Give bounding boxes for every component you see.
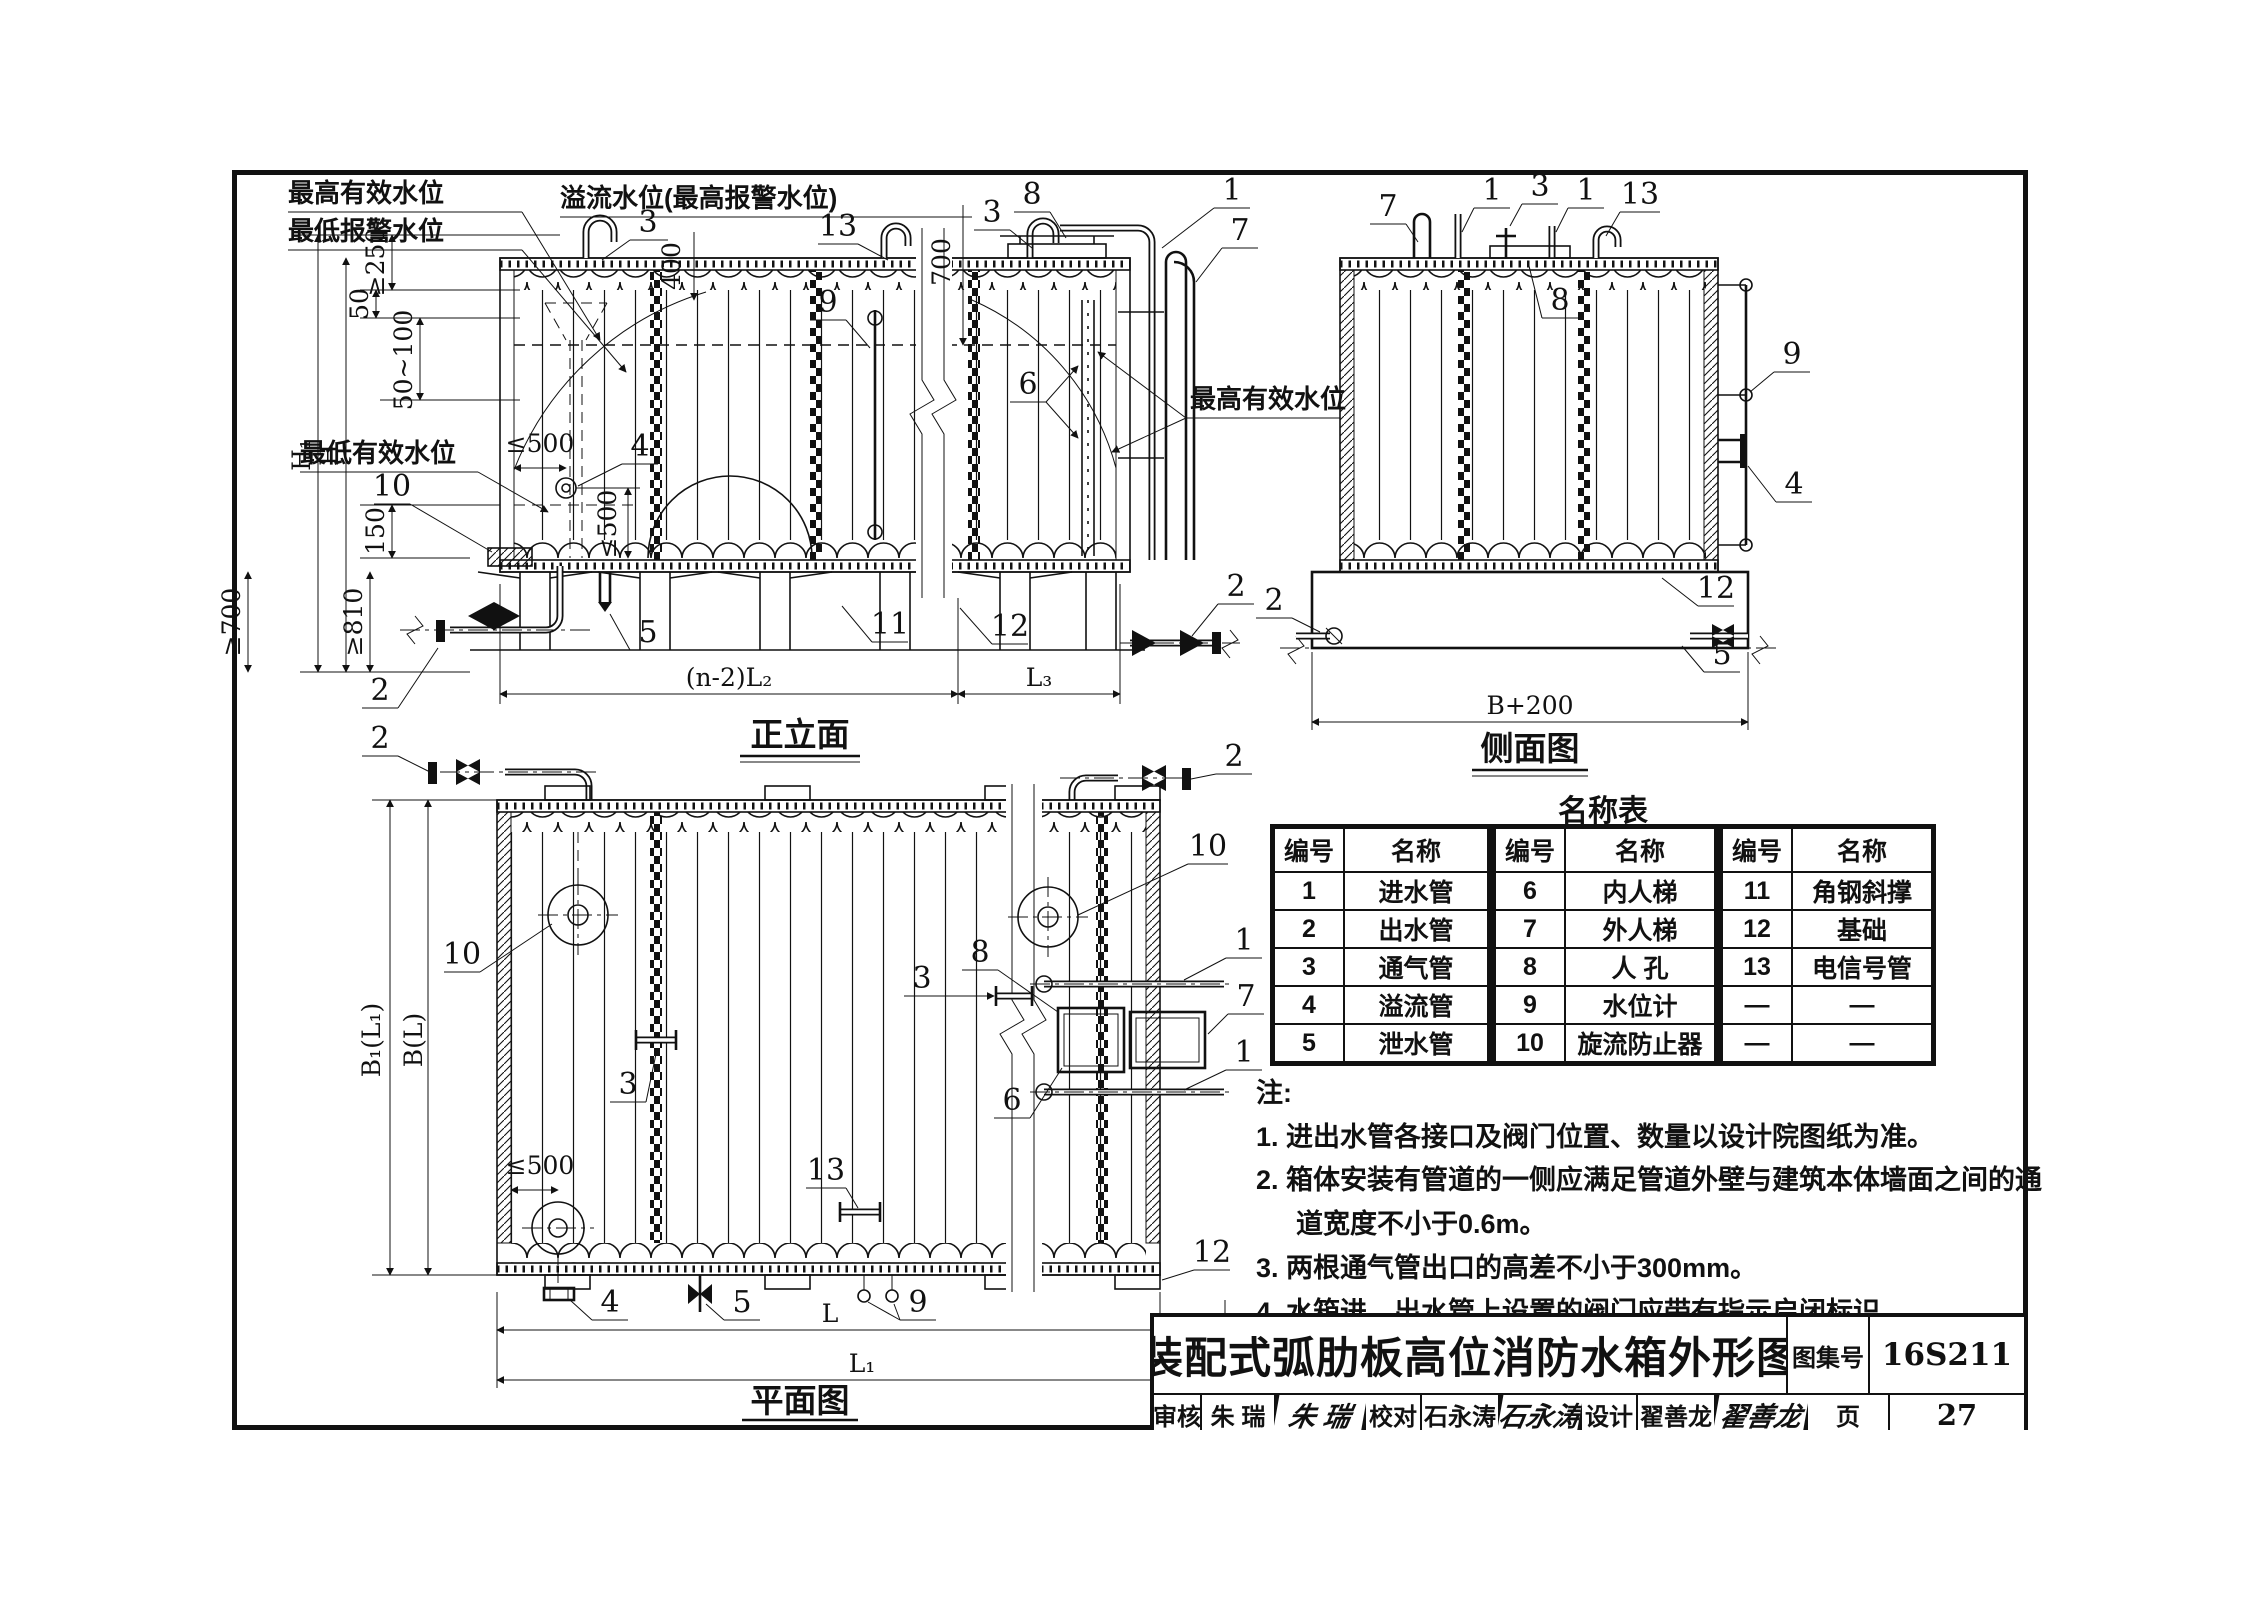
design-label: 设计 xyxy=(1582,1395,1636,1434)
col-header-id: 编号 xyxy=(1722,828,1792,872)
cell: 电信号管 xyxy=(1792,948,1932,986)
plan-callout-3L: 3 xyxy=(618,1067,637,1102)
callout-feed-right: 2 xyxy=(1224,739,1243,774)
plan-callout-10L: 10 xyxy=(443,937,481,972)
cell: 基础 xyxy=(1792,910,1932,948)
plan-callout-5: 5 xyxy=(732,1285,751,1320)
callout-ladder-int: 6 xyxy=(1018,367,1037,402)
designer-name: 翟善龙 xyxy=(1638,1395,1714,1434)
vent-gooseneck-left xyxy=(586,218,614,258)
cell: 8 xyxy=(1495,948,1565,986)
plan-feed-left: 2 xyxy=(362,721,600,800)
callout-brace: 11 xyxy=(871,607,909,642)
notes-section: 注: 1. 进出水管各接口及阀门位置、数量以设计院图纸为准。 2. 箱体安装有管… xyxy=(1256,1072,2046,1334)
side-callout-9: 9 xyxy=(1782,337,1801,372)
reviewer-signature: 朱 瑞 xyxy=(1273,1395,1368,1434)
vent-gooseneck-right xyxy=(1030,221,1056,258)
outlet-piping-right xyxy=(1120,630,1240,658)
side-callout-2: 2 xyxy=(1264,583,1283,618)
note-item-2: 2. 箱体安装有管道的一侧应满足管道外壁与建筑本体墙面之间的通道宽度不小于0.6… xyxy=(1256,1159,2046,1246)
callout-outlet-left: 2 xyxy=(370,673,389,708)
dim-400: 400 xyxy=(657,242,686,290)
review-label: 审核 xyxy=(1154,1395,1200,1434)
side-callout-1a: 1 xyxy=(1482,173,1501,208)
name-table-group-1: 编号 名称 1进水管 2出水管 3通气管 4溢流管 5泄水管 xyxy=(1273,827,1489,1063)
outlet-piping-left xyxy=(400,548,590,644)
name-table: 编号 名称 1进水管 2出水管 3通气管 4溢流管 5泄水管 编号 名称 6内人… xyxy=(1270,824,1936,1066)
drawing-sheet: H₁ H ≥250 50 50~100 150 ≥700 ≥810 400 70… xyxy=(0,0,2263,1600)
plan-callout-13: 13 xyxy=(807,1153,845,1188)
dim-le500-h: ≤500 xyxy=(506,429,575,458)
name-table-group-2: 编号 名称 6内人梯 7外人梯 8人 孔 9水位计 10旋流防止器 xyxy=(1494,827,1716,1063)
side-view: 7 1 3 1 13 8 9 4 12 5 2 xyxy=(1256,169,1812,776)
plan-feed-right: 2 xyxy=(1060,739,1252,800)
side-gauge xyxy=(1718,279,1752,551)
dim-plan-le500: ≤500 xyxy=(506,1151,575,1180)
dim-50: 50 xyxy=(345,288,374,320)
callout-drain: 5 xyxy=(638,615,657,650)
col-header-name: 名称 xyxy=(1792,828,1932,872)
label-max-effective-level: 最高有效水位 xyxy=(288,178,444,208)
dim-l1: L₁ xyxy=(849,1349,876,1378)
plan-callout-8: 8 xyxy=(970,935,989,970)
cell: 人 孔 xyxy=(1565,948,1715,986)
cell: — xyxy=(1722,1024,1792,1062)
dim-50-100: 50~100 xyxy=(389,310,418,410)
cell: 9 xyxy=(1495,986,1565,1024)
plan-callout-3M: 3 xyxy=(912,961,931,996)
side-outlet xyxy=(1296,628,1342,644)
plan-overflow-flange xyxy=(544,1288,574,1300)
dim-le500-v: ≤500 xyxy=(593,490,622,559)
cell: 通气管 xyxy=(1344,948,1488,986)
cell: — xyxy=(1792,986,1932,1024)
callout-outlet-right: 2 xyxy=(1226,569,1245,604)
cell: 7 xyxy=(1495,910,1565,948)
dim-700: 700 xyxy=(927,238,956,286)
callout-feed-left: 2 xyxy=(370,721,389,756)
page-number: 27 xyxy=(1890,1395,2024,1434)
plan-callout-1B: 1 xyxy=(1234,1035,1253,1070)
dim-150: 150 xyxy=(361,507,390,555)
cell: 出水管 xyxy=(1344,910,1488,948)
dim-span-right: L₃ xyxy=(1026,663,1053,692)
col-header-id: 编号 xyxy=(1495,828,1565,872)
callout-overflow-nozzle: 4 xyxy=(630,429,649,464)
cell: 10 xyxy=(1495,1024,1565,1062)
drain-stub xyxy=(598,572,612,612)
side-callout-5: 5 xyxy=(1712,637,1731,672)
plan-callout-1T: 1 xyxy=(1234,923,1253,958)
label-min-effective-level: 最低有效水位 xyxy=(300,438,456,468)
side-callout-4: 4 xyxy=(1784,467,1803,502)
foundation-base xyxy=(1312,572,1748,648)
cell: 11 xyxy=(1722,872,1792,910)
front-view-caption: 正立面 xyxy=(751,716,850,753)
reviewer-name: 朱 瑞 xyxy=(1202,1395,1274,1434)
plan-callout-4: 4 xyxy=(600,1285,619,1320)
dim-l: L xyxy=(822,1299,839,1328)
cell: — xyxy=(1722,986,1792,1024)
cell: 内人梯 xyxy=(1565,872,1715,910)
callout-foundation: 12 xyxy=(991,609,1029,644)
side-callout-8: 8 xyxy=(1550,283,1569,318)
side-callout-1b: 1 xyxy=(1576,173,1595,208)
side-overflow-nozzle xyxy=(1718,434,1747,468)
notes-heading: 注: xyxy=(1256,1072,2046,1116)
cell: 12 xyxy=(1722,910,1792,948)
plan-callout-9: 9 xyxy=(908,1285,927,1320)
side-callout-12: 12 xyxy=(1697,571,1735,606)
callout-vortex: 10 xyxy=(373,469,411,504)
dim-ge810: ≥810 xyxy=(339,588,368,657)
dim-bl: B(L) xyxy=(399,1013,428,1067)
vortex-preventer-front xyxy=(488,548,532,566)
label-max-effective-level-right: 最高有效水位 xyxy=(1190,384,1346,414)
callout-gauge: 9 xyxy=(818,285,837,320)
side-callout-13: 13 xyxy=(1621,177,1659,212)
label-overflow-level: 溢流水位(最高报警水位) xyxy=(560,183,837,213)
label-min-alarm-level: 最低报警水位 xyxy=(288,216,444,246)
cell: 5 xyxy=(1274,1024,1344,1062)
cell: 6 xyxy=(1495,872,1565,910)
plan-callout-10R: 10 xyxy=(1189,829,1227,864)
proofer-signature: 石永涛 xyxy=(1497,1395,1584,1434)
atlas-number-label: 图集号 xyxy=(1788,1317,1868,1393)
cell: 进水管 xyxy=(1344,872,1488,910)
proofer-name: 石永涛 xyxy=(1422,1395,1498,1434)
designer-signature: 翟善龙 xyxy=(1713,1395,1810,1434)
cell: 溢流管 xyxy=(1344,986,1488,1024)
page-label: 页 xyxy=(1808,1395,1888,1434)
cell: 3 xyxy=(1274,948,1344,986)
col-header-name: 名称 xyxy=(1344,828,1488,872)
callout-signal: 13 xyxy=(819,209,857,244)
side-view-caption: 侧面图 xyxy=(1481,730,1580,767)
cell: 13 xyxy=(1722,948,1792,986)
callout-manhole: 8 xyxy=(1022,177,1041,212)
side-top-pipes xyxy=(1414,214,1618,258)
name-table-group-3: 编号 名称 11角钢斜撑 12基础 13电信号管 —— —— xyxy=(1721,827,1933,1063)
cell: — xyxy=(1792,1024,1932,1062)
side-callout-3: 3 xyxy=(1530,169,1549,204)
cell: 1 xyxy=(1274,872,1344,910)
dim-b200: B+200 xyxy=(1486,691,1573,720)
dim-ge700: ≥700 xyxy=(217,588,246,657)
cell: 4 xyxy=(1274,986,1344,1024)
plan-gauge-stubs xyxy=(858,1275,898,1302)
front-elevation-view: H₁ H ≥250 50 50~100 150 ≥700 ≥810 400 70… xyxy=(217,173,1346,800)
cell: 水位计 xyxy=(1565,986,1715,1024)
plan-callout-12: 12 xyxy=(1193,1235,1231,1270)
col-header-name: 名称 xyxy=(1565,828,1715,872)
proof-label: 校对 xyxy=(1366,1395,1420,1434)
callout-ladder-ext: 7 xyxy=(1230,213,1249,248)
cell: 2 xyxy=(1274,910,1344,948)
callout-vent-a: 3 xyxy=(638,205,657,240)
callout-vent-b: 3 xyxy=(982,195,1001,230)
cell: 泄水管 xyxy=(1344,1024,1488,1062)
signal-gooseneck xyxy=(884,226,908,258)
plan-callout-6: 6 xyxy=(1002,1083,1021,1118)
title-block: 装配式弧肋板高位消防水箱外形图 图集号 16S211 审核 朱 瑞 朱 瑞 校对… xyxy=(1150,1313,2028,1430)
col-header-id: 编号 xyxy=(1274,828,1344,872)
dim-span-mid: (n-2)L₂ xyxy=(686,663,773,692)
plan-view: B₁(L₁) B(L) ≤500 10 10 3 3 8 6 1 xyxy=(357,782,1264,1426)
drawing-title: 装配式弧肋板高位消防水箱外形图 xyxy=(1154,1317,1786,1393)
atlas-number: 16S211 xyxy=(1870,1317,2024,1393)
tank-supports xyxy=(470,572,1145,650)
plan-callout-7: 7 xyxy=(1236,979,1255,1014)
note-item-3: 3. 两根通气管出口的高差不小于300mm。 xyxy=(1256,1247,2046,1291)
plan-view-caption: 平面图 xyxy=(751,1382,850,1419)
dim-b1l1: B₁(L₁) xyxy=(357,1003,386,1078)
cell: 角钢斜撑 xyxy=(1792,872,1932,910)
cell: 旋流防止器 xyxy=(1565,1024,1715,1062)
note-item-1: 1. 进出水管各接口及阀门位置、数量以设计院图纸为准。 xyxy=(1256,1116,2046,1160)
cell: 外人梯 xyxy=(1565,910,1715,948)
side-callout-7: 7 xyxy=(1378,189,1397,224)
callout-inlet: 1 xyxy=(1222,173,1241,208)
